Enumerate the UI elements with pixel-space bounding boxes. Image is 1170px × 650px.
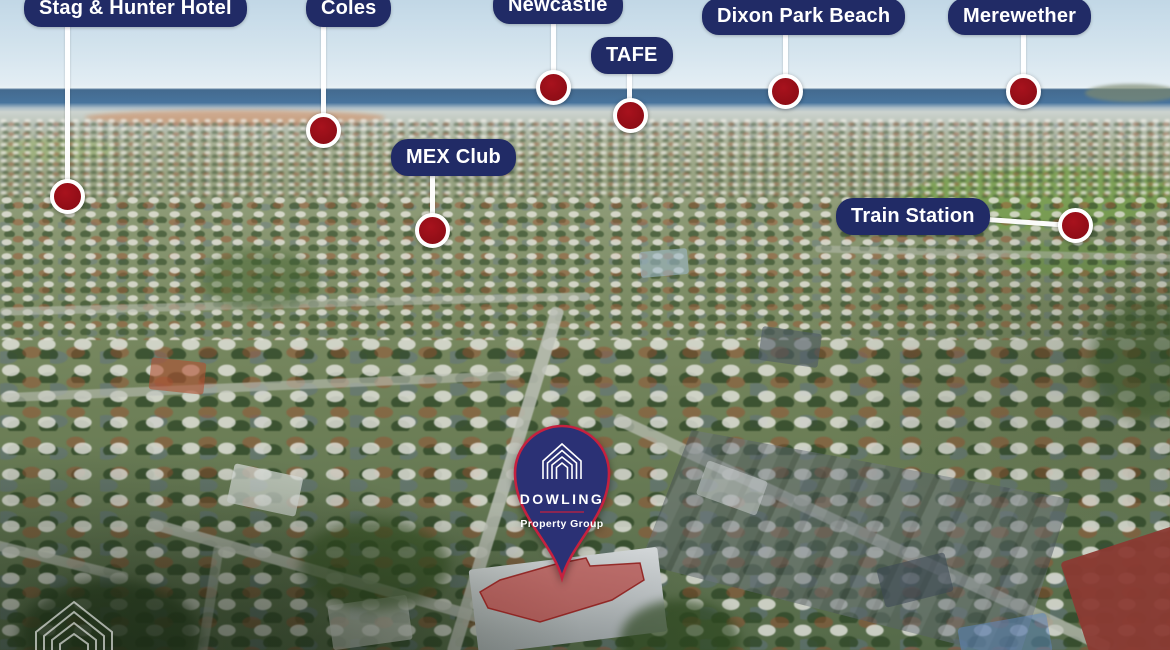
location-label-text: Merewether [963,5,1076,27]
location-label-merewether: Merewether [948,0,1091,35]
marker-stag-hunter-hotel [50,179,85,214]
marker-train-station [1058,208,1093,243]
pin-brand-subtitle: Property Group [520,518,603,530]
marker-tafe [613,98,648,133]
marker-merewether [1006,74,1041,109]
location-label-mex-club: MEX Club [391,139,516,176]
aerial-suburb-map: Stag & Hunter Hotel Coles Newcastle TAFE… [0,0,1170,650]
dowling-property-pin: DOWLING Property Group [511,420,613,584]
location-label-dixon-park-beach: Dixon Park Beach [702,0,905,35]
location-label-text: TAFE [606,44,658,66]
location-label-newcastle: Newcastle [493,0,623,24]
location-label-text: MEX Club [406,146,501,168]
location-label-train-station: Train Station [836,198,990,235]
location-label-text: Newcastle [508,0,608,16]
leader-stag-hunter-hotel [65,20,70,196]
location-label-text: Dixon Park Beach [717,5,890,27]
location-label-text: Train Station [851,205,975,227]
marker-mex-club [415,213,450,248]
pin-brand-title: DOWLING [520,491,604,507]
location-label-coles: Coles [306,0,391,27]
location-label-text: Coles [321,0,376,19]
marker-coles [306,113,341,148]
location-label-stag-hunter-hotel: Stag & Hunter Hotel [24,0,247,27]
marker-dixon-park-beach [768,74,803,109]
location-label-tafe: TAFE [591,37,673,74]
location-label-text: Stag & Hunter Hotel [39,0,232,19]
dowling-watermark-icon [28,596,120,650]
marker-newcastle [536,70,571,105]
